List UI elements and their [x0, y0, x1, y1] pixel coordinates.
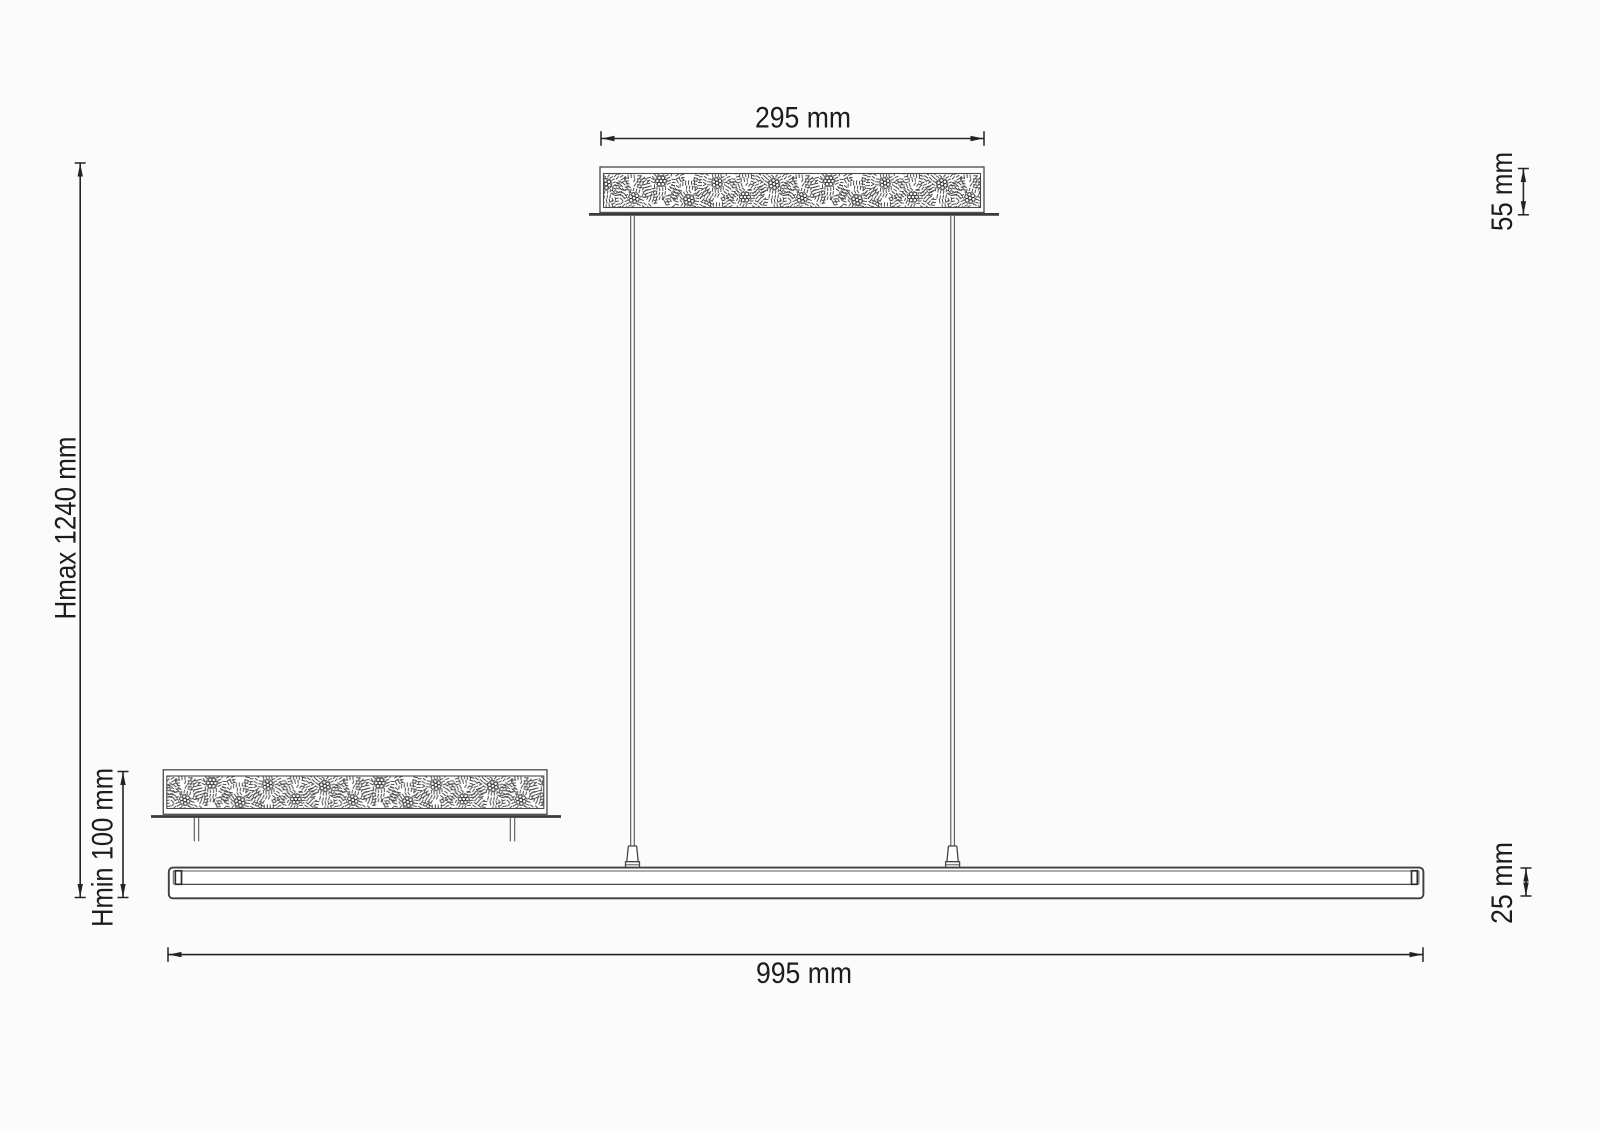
svg-text:55 mm: 55 mm: [1486, 152, 1519, 231]
svg-text:Hmax 1240 mm: Hmax 1240 mm: [50, 437, 83, 620]
svg-text:25 mm: 25 mm: [1486, 842, 1519, 924]
svg-text:995 mm: 995 mm: [756, 957, 852, 990]
svg-text:295 mm: 295 mm: [755, 101, 851, 134]
svg-text:Hmin 100 mm: Hmin 100 mm: [87, 768, 120, 927]
